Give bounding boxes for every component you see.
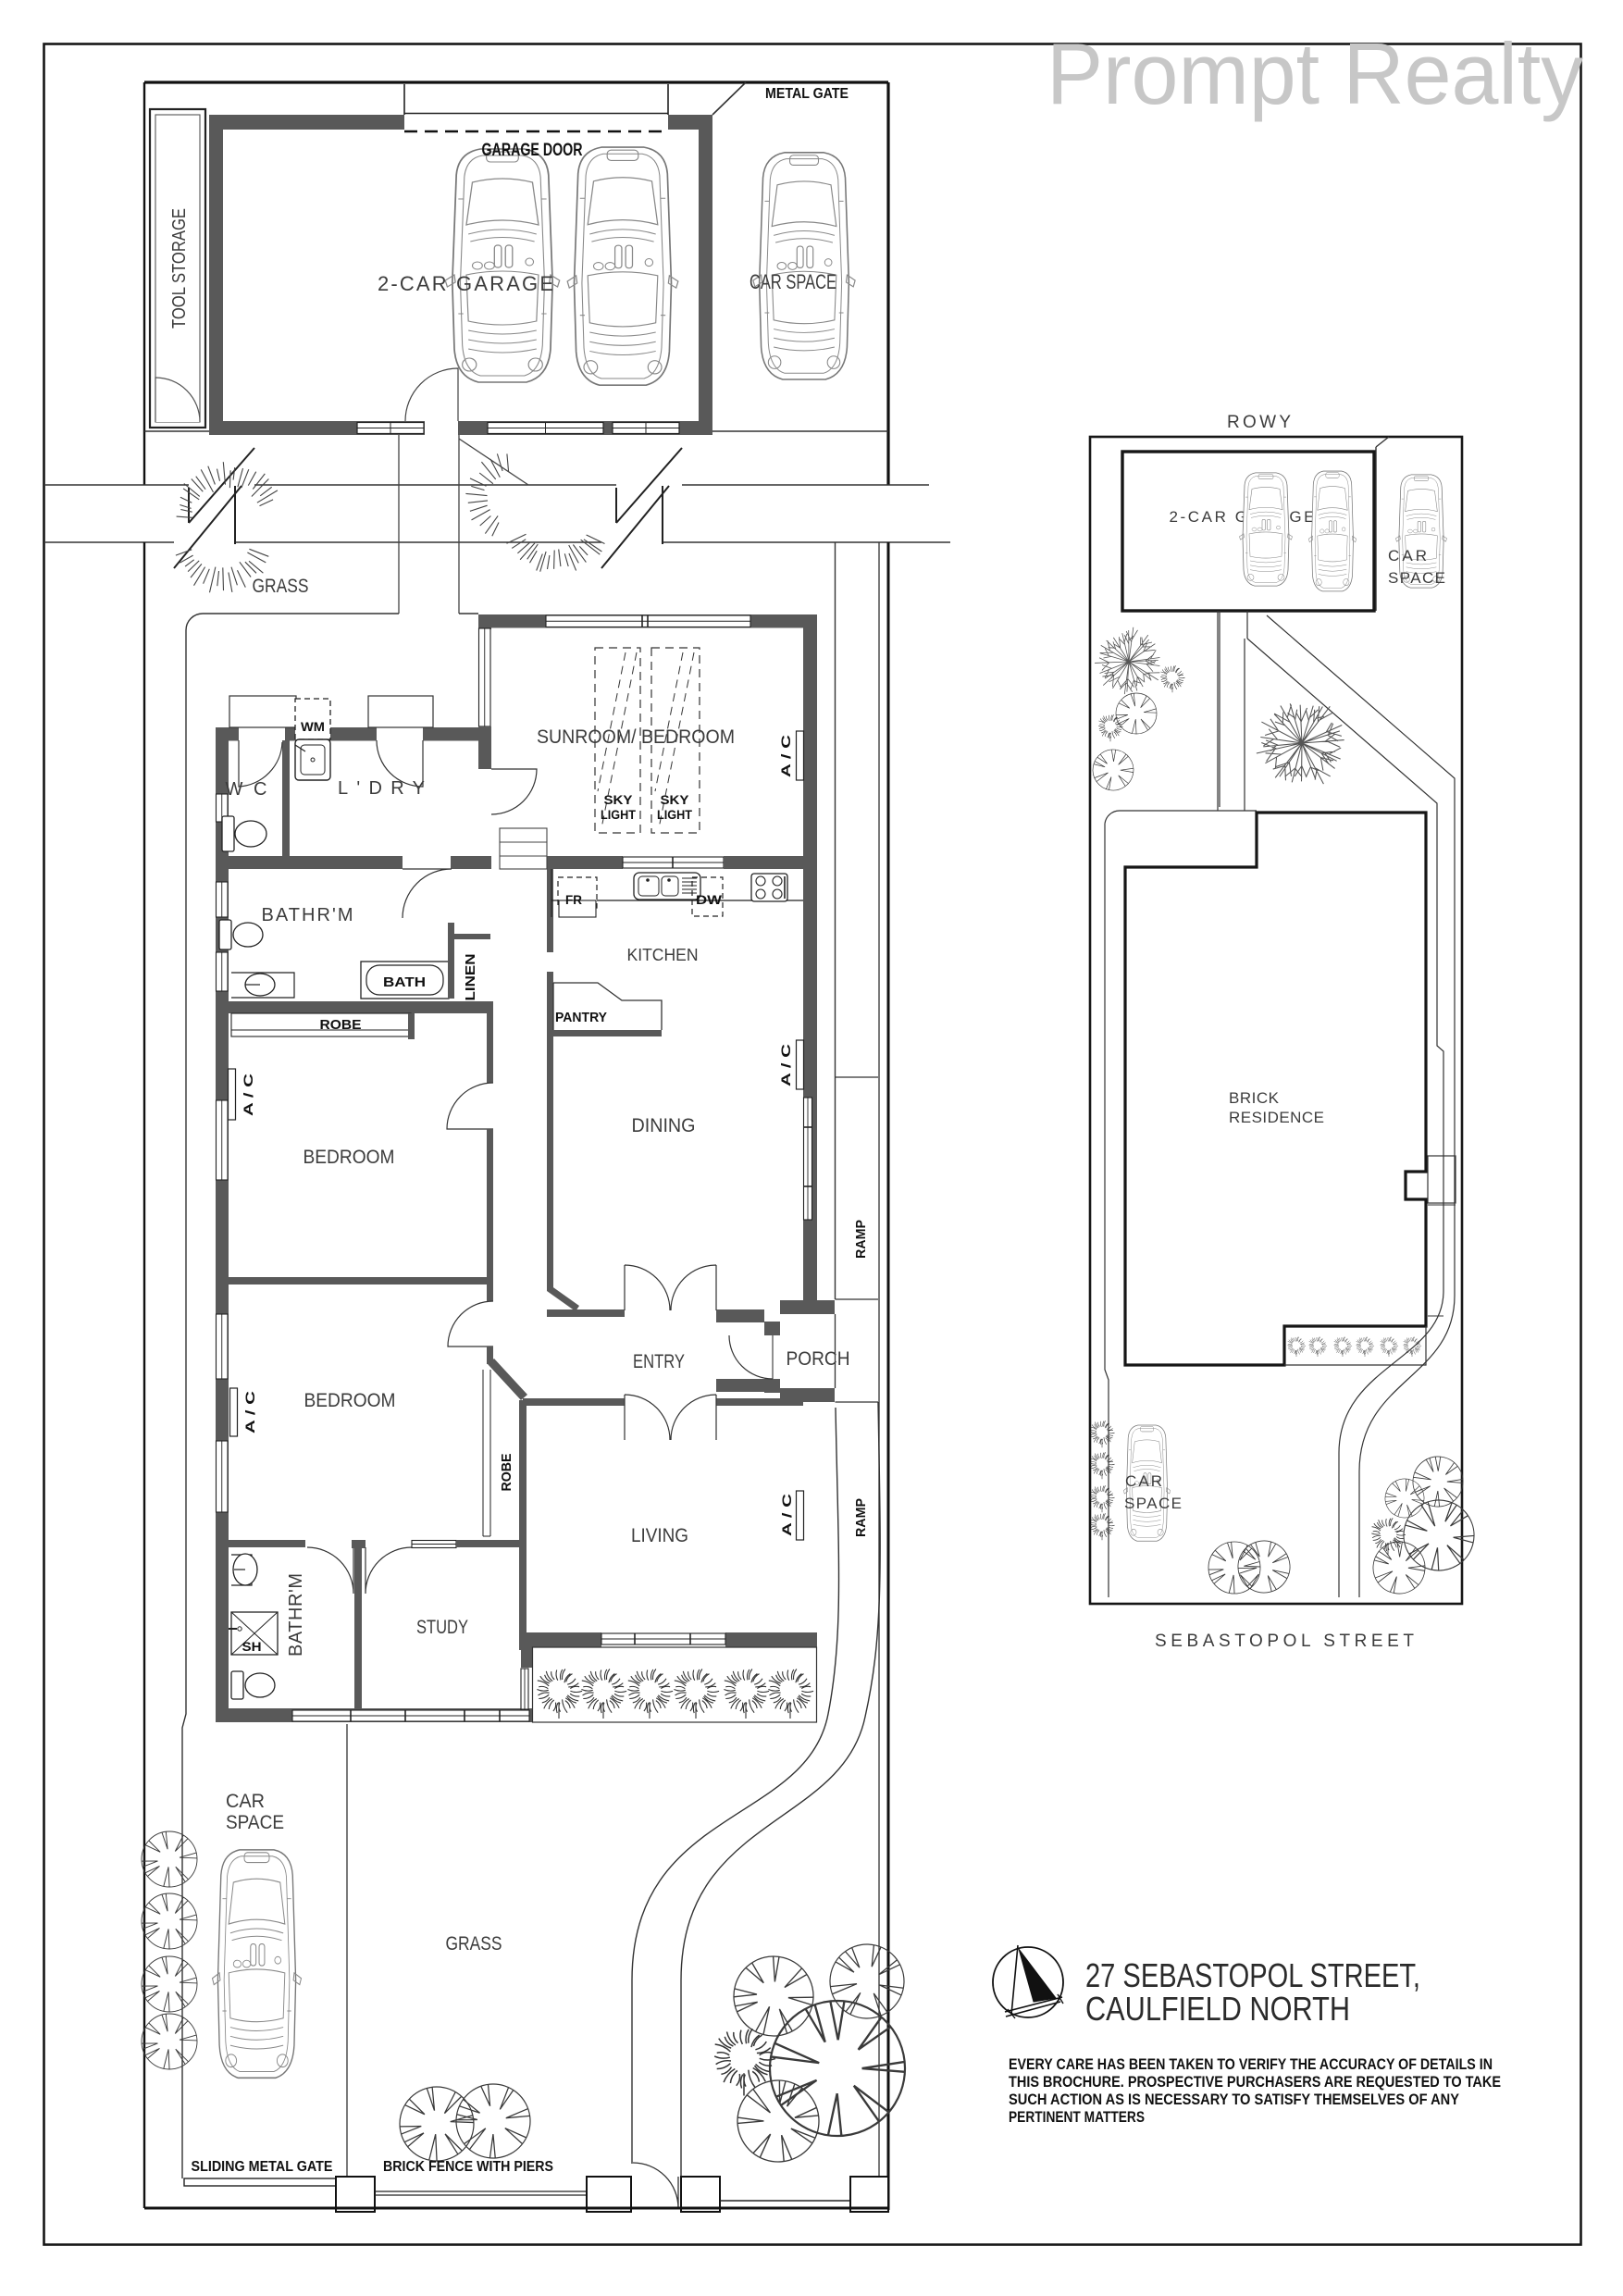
svg-text:A / C: A / C [241, 1074, 255, 1116]
svg-text:STUDY: STUDY [416, 1617, 468, 1638]
svg-text:SPACE: SPACE [1388, 569, 1445, 587]
svg-text:ROBE: ROBE [320, 1017, 362, 1033]
svg-text:BATHR'M: BATHR'M [262, 905, 353, 925]
svg-text:CAR SPACE: CAR SPACE [750, 270, 836, 293]
svg-text:BATH: BATH [383, 974, 426, 990]
svg-text:2-CAR GARAGE: 2-CAR GARAGE [1170, 508, 1315, 526]
svg-text:DW: DW [696, 892, 723, 907]
svg-text:RAMP: RAMP [853, 1498, 869, 1537]
svg-text:EVERY CARE HAS BEEN TAKEN TO V: EVERY CARE HAS BEEN TAKEN TO VERIFY THE … [1009, 2055, 1493, 2073]
svg-text:SUCH ACTION AS IS NECESSARY TO: SUCH ACTION AS IS NECESSARY TO SATISFY T… [1009, 2091, 1460, 2108]
svg-text:BEDROOM: BEDROOM [304, 1390, 396, 1411]
svg-text:SUNROOM/ BEDROOM: SUNROOM/ BEDROOM [537, 726, 735, 748]
svg-text:GRASS: GRASS [446, 1933, 502, 1955]
svg-text:SPACE: SPACE [226, 1812, 284, 1833]
svg-text:LINEN: LINEN [463, 954, 478, 1001]
svg-text:A / C: A / C [242, 1391, 257, 1433]
svg-text:PANTRY: PANTRY [555, 1010, 607, 1025]
svg-text:GRASS: GRASS [253, 576, 309, 597]
svg-text:SLIDING METAL GATE: SLIDING METAL GATE [192, 2159, 333, 2175]
svg-text:RAMP: RAMP [853, 1220, 869, 1259]
svg-text:L'DRY: L'DRY [338, 778, 425, 799]
svg-text:TOOL STORAGE: TOOL STORAGE [169, 208, 190, 329]
svg-text:FR: FR [565, 892, 582, 907]
svg-text:LIGHT: LIGHT [657, 807, 692, 822]
svg-text:BATHR'M: BATHR'M [286, 1573, 306, 1657]
svg-text:WC: WC [226, 779, 267, 800]
svg-text:DINING: DINING [632, 1115, 696, 1136]
svg-text:BRICK FENCE WITH PIERS: BRICK FENCE WITH PIERS [383, 2159, 553, 2175]
svg-text:SKY: SKY [661, 792, 690, 807]
svg-text:BEDROOM: BEDROOM [304, 1147, 395, 1168]
svg-text:A / C: A / C [779, 1494, 794, 1536]
svg-text:KITCHEN: KITCHEN [627, 946, 699, 964]
svg-text:Prompt Realty: Prompt Realty [1047, 25, 1583, 122]
svg-text:2-CAR GARAGE: 2-CAR GARAGE [378, 272, 553, 295]
svg-text:ROWY: ROWY [1227, 413, 1299, 432]
svg-text:SPACE: SPACE [1124, 1495, 1182, 1512]
svg-text:CAULFIELD NORTH: CAULFIELD NORTH [1085, 1990, 1350, 2028]
svg-text:CAR: CAR [1388, 547, 1427, 565]
svg-text:BRICK: BRICK [1229, 1089, 1280, 1107]
svg-text:LIGHT: LIGHT [601, 807, 636, 822]
svg-text:LIVING: LIVING [631, 1525, 688, 1546]
svg-text:ROBE: ROBE [499, 1454, 514, 1492]
svg-text:A / C: A / C [778, 735, 793, 777]
svg-text:SEBASTOPOL STREET: SEBASTOPOL STREET [1155, 1632, 1414, 1651]
svg-text:RESIDENCE: RESIDENCE [1229, 1109, 1324, 1126]
svg-text:THIS BROCHURE. PROSPECTIVE PU: THIS BROCHURE. PROSPECTIVE PURCHASERS AR… [1009, 2073, 1501, 2091]
svg-text:GARAGE DOOR: GARAGE DOOR [482, 141, 583, 160]
svg-text:METAL GATE: METAL GATE [765, 86, 849, 102]
svg-text:WM: WM [301, 719, 325, 734]
svg-text:PERTINENT MATTERS: PERTINENT MATTERS [1009, 2108, 1145, 2126]
svg-text:SH: SH [242, 1639, 262, 1654]
svg-text:CAR: CAR [226, 1791, 265, 1812]
svg-text:SKY: SKY [604, 792, 634, 807]
svg-text:27 SEBASTOPOL STREET,: 27 SEBASTOPOL STREET, [1085, 1956, 1420, 1994]
svg-text:A / C: A / C [778, 1044, 793, 1086]
svg-text:PORCH: PORCH [787, 1348, 850, 1370]
svg-text:ENTRY: ENTRY [633, 1351, 685, 1372]
svg-text:CAR: CAR [1125, 1472, 1162, 1490]
